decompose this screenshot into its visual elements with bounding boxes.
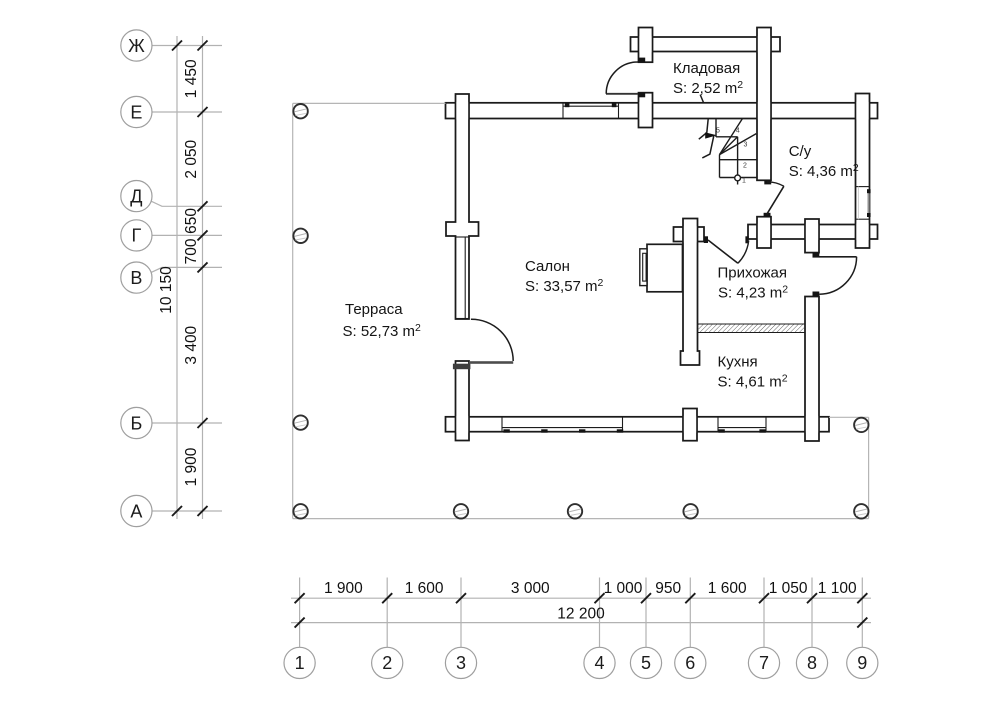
svg-text:5: 5 [716, 128, 720, 135]
svg-text:3 400: 3 400 [183, 325, 200, 364]
svg-text:S: 2,52 m2: S: 2,52 m2 [673, 79, 743, 97]
svg-text:Салон: Салон [525, 258, 570, 275]
svg-text:2: 2 [743, 163, 747, 170]
svg-text:S: 4,23 m2: S: 4,23 m2 [718, 284, 788, 302]
svg-text:Кухня: Кухня [718, 354, 758, 371]
svg-text:4: 4 [594, 653, 604, 673]
svg-text:1 100: 1 100 [818, 580, 857, 597]
svg-text:1 600: 1 600 [405, 580, 444, 597]
svg-text:7: 7 [759, 653, 769, 673]
svg-text:6: 6 [685, 653, 695, 673]
svg-text:1: 1 [295, 653, 305, 673]
svg-text:S: 33,57 m2: S: 33,57 m2 [525, 277, 604, 295]
svg-text:3: 3 [743, 141, 747, 148]
svg-text:Терраса: Терраса [345, 301, 403, 318]
svg-text:1 900: 1 900 [324, 580, 363, 597]
svg-text:12 200: 12 200 [557, 606, 605, 623]
svg-text:1 900: 1 900 [183, 447, 200, 486]
svg-text:5: 5 [641, 653, 651, 673]
svg-text:3 000: 3 000 [511, 580, 550, 597]
svg-text:Д: Д [130, 186, 142, 206]
svg-text:650: 650 [183, 208, 200, 234]
svg-text:S: 52,73 m2: S: 52,73 m2 [343, 322, 422, 340]
svg-text:700: 700 [183, 238, 200, 264]
svg-text:10 150: 10 150 [158, 266, 175, 314]
svg-text:Г: Г [132, 226, 142, 246]
svg-text:2: 2 [382, 653, 392, 673]
svg-text:4: 4 [736, 128, 740, 135]
svg-text:1 450: 1 450 [183, 59, 200, 98]
svg-text:В: В [130, 268, 142, 288]
svg-text:Ж: Ж [128, 36, 145, 56]
svg-text:Прихожая: Прихожая [718, 265, 788, 282]
svg-text:S: 4,61 m2: S: 4,61 m2 [718, 373, 788, 391]
svg-text:950: 950 [655, 580, 681, 597]
svg-text:Кладовая: Кладовая [673, 60, 740, 77]
svg-text:9: 9 [857, 653, 867, 673]
svg-text:S: 4,36 m2: S: 4,36 m2 [789, 162, 859, 180]
svg-text:1 000: 1 000 [604, 580, 643, 597]
svg-text:8: 8 [807, 653, 817, 673]
svg-text:А: А [130, 501, 142, 521]
svg-text:3: 3 [456, 653, 466, 673]
svg-text:С/у: С/у [789, 143, 812, 160]
svg-text:1: 1 [742, 178, 746, 185]
svg-text:1 600: 1 600 [708, 580, 747, 597]
svg-text:Е: Е [130, 102, 142, 122]
svg-text:Б: Б [130, 413, 142, 433]
svg-text:1 050: 1 050 [769, 580, 808, 597]
svg-text:2 050: 2 050 [183, 139, 200, 178]
